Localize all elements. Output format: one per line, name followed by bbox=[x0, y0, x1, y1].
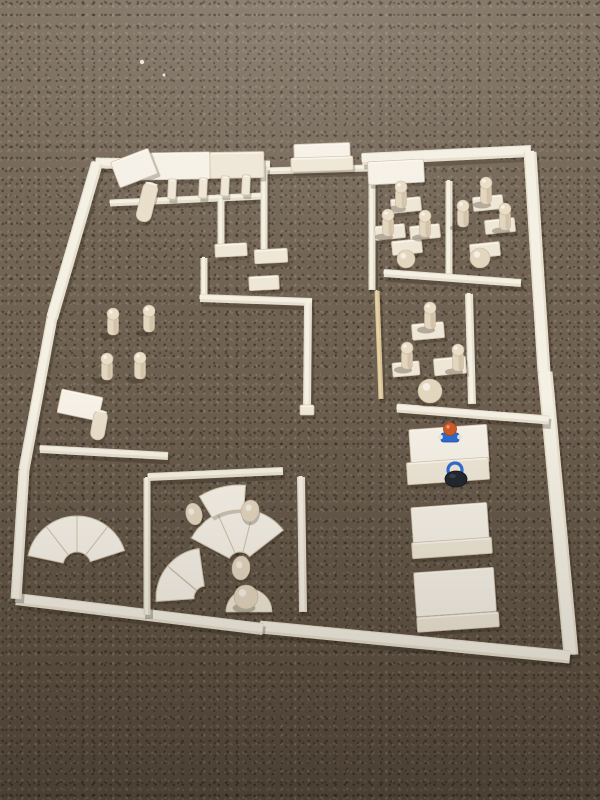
right-wall-lower bbox=[545, 371, 574, 659]
classroom2-peg-3-sheen bbox=[454, 346, 458, 350]
scene-svg bbox=[0, 0, 600, 800]
classroom1-ball-2-body bbox=[470, 248, 490, 268]
playroom-right-wall bbox=[301, 476, 306, 616]
roof-board-2-edge bbox=[211, 153, 262, 154]
hall-peg-1-head bbox=[107, 308, 119, 320]
hall-peg-3 bbox=[94, 353, 113, 385]
classroom1-peg-2-head bbox=[382, 209, 394, 221]
playroom-left-wall bbox=[147, 477, 150, 619]
classroom1-peg-5 bbox=[473, 177, 492, 209]
classroom1-peg-5-sheen bbox=[482, 179, 486, 183]
playroom-dome-ball bbox=[233, 585, 258, 613]
playroom-egg-3 bbox=[231, 555, 253, 584]
classroom2-peg-2-head bbox=[401, 342, 413, 354]
colonnade-pillar-1-body bbox=[167, 179, 176, 199]
figure-dark-blue-body bbox=[445, 471, 467, 487]
playroom-dome-ball-sheen bbox=[239, 589, 247, 597]
classroom1-peg-4-head bbox=[457, 200, 469, 212]
classroom2-ball-body bbox=[418, 379, 442, 403]
corridor-wall-face bbox=[307, 302, 308, 409]
block-floorplan-photo bbox=[0, 0, 600, 800]
platform3-board-body bbox=[414, 567, 497, 616]
classroom1-peg-3-head bbox=[419, 210, 431, 222]
classroom2-peg-2 bbox=[394, 342, 413, 374]
carpet-lint-1 bbox=[140, 60, 144, 64]
colonnade-pillar-2-body bbox=[198, 178, 207, 198]
hall-peg-3-head bbox=[101, 353, 113, 365]
corridor-wall bbox=[307, 302, 311, 414]
bottom-wall-right bbox=[260, 626, 573, 661]
classroom2-left-stick bbox=[377, 290, 384, 403]
hall-peg-4-sheen bbox=[136, 354, 140, 358]
classroom2-peg-1 bbox=[417, 302, 436, 334]
classroom2-peg-3-head bbox=[452, 344, 464, 356]
classroom2-bottom-wall bbox=[397, 407, 552, 424]
classroom2-ball bbox=[417, 379, 442, 407]
classroom2-peg-1-sheen bbox=[426, 304, 430, 308]
classroom2-peg-1-head bbox=[424, 302, 436, 314]
carpet-lint-2 bbox=[163, 74, 166, 77]
hall-peg-3-sheen bbox=[103, 355, 107, 359]
classroom2-peg-2-sheen bbox=[403, 344, 407, 348]
maze-wall-horizontal bbox=[200, 297, 315, 306]
maze-block-2 bbox=[254, 248, 290, 268]
classroom1-peg-4-sheen bbox=[459, 202, 463, 206]
maze-block-3 bbox=[249, 275, 282, 295]
classroom1-peg-1-head bbox=[395, 181, 407, 193]
hall-peg-1 bbox=[100, 308, 119, 340]
hall-peg-4 bbox=[127, 352, 146, 384]
colonnade-rail bbox=[110, 195, 265, 207]
corridor-foot-block bbox=[300, 405, 316, 419]
classroom1-ball-1-body bbox=[397, 250, 415, 268]
fan-center-main bbox=[191, 509, 285, 561]
left-wall-upper bbox=[52, 162, 100, 322]
figure-orange-head-hand-left bbox=[438, 435, 443, 440]
playroom-top-wall bbox=[148, 470, 286, 481]
entrance-block-base bbox=[291, 156, 356, 176]
fan-left bbox=[28, 516, 126, 566]
right-wall-upper bbox=[530, 151, 547, 376]
classroom1-peg-6-head bbox=[499, 203, 511, 215]
left-wall-lower bbox=[16, 469, 27, 603]
maze-block-1 bbox=[215, 243, 250, 262]
classroom1-ball-1-sheen bbox=[400, 253, 406, 259]
figure-orange-head-sheen bbox=[446, 425, 449, 428]
playroom-right-wall-face bbox=[301, 476, 303, 611]
hall-peg-4-head bbox=[134, 352, 146, 364]
hall-peg-1-sheen bbox=[109, 310, 113, 314]
classroom1-peg-5-head bbox=[480, 177, 492, 189]
figure-orange-head-head bbox=[444, 423, 457, 436]
hall-peg-2-sheen bbox=[145, 307, 149, 311]
fan-lower bbox=[156, 548, 206, 604]
classroom2-divider bbox=[469, 293, 475, 408]
colonnade-pillar-4-body bbox=[241, 175, 250, 195]
classroom1-bottom-wall bbox=[384, 272, 524, 287]
hall-peg-2-head bbox=[143, 305, 155, 317]
figure-dark-blue-sheen bbox=[449, 474, 456, 478]
classroom1-ball-2-sheen bbox=[474, 251, 480, 257]
roof-board-2 bbox=[210, 151, 267, 182]
left-wall-upper-face bbox=[52, 162, 97, 317]
classroom1-peg-1-sheen bbox=[397, 183, 401, 187]
classroom2-ball-sheen bbox=[423, 383, 431, 391]
classroom1-peg-6-sheen bbox=[501, 205, 505, 209]
figure-orange-head-hand-right bbox=[457, 435, 462, 440]
classroom1-peg-3-sheen bbox=[421, 212, 425, 216]
colonnade-pillar-3-body bbox=[220, 176, 229, 196]
maze-wall-vertical-2 bbox=[221, 199, 224, 250]
playroom-dome-ball-body bbox=[234, 585, 258, 609]
classroom1-peg-2-sheen bbox=[384, 211, 388, 215]
left-room-wall bbox=[40, 448, 171, 460]
classroom1-left-wall bbox=[372, 181, 375, 294]
roof-board-2-body bbox=[210, 152, 264, 179]
hall-peg-2 bbox=[136, 305, 155, 337]
